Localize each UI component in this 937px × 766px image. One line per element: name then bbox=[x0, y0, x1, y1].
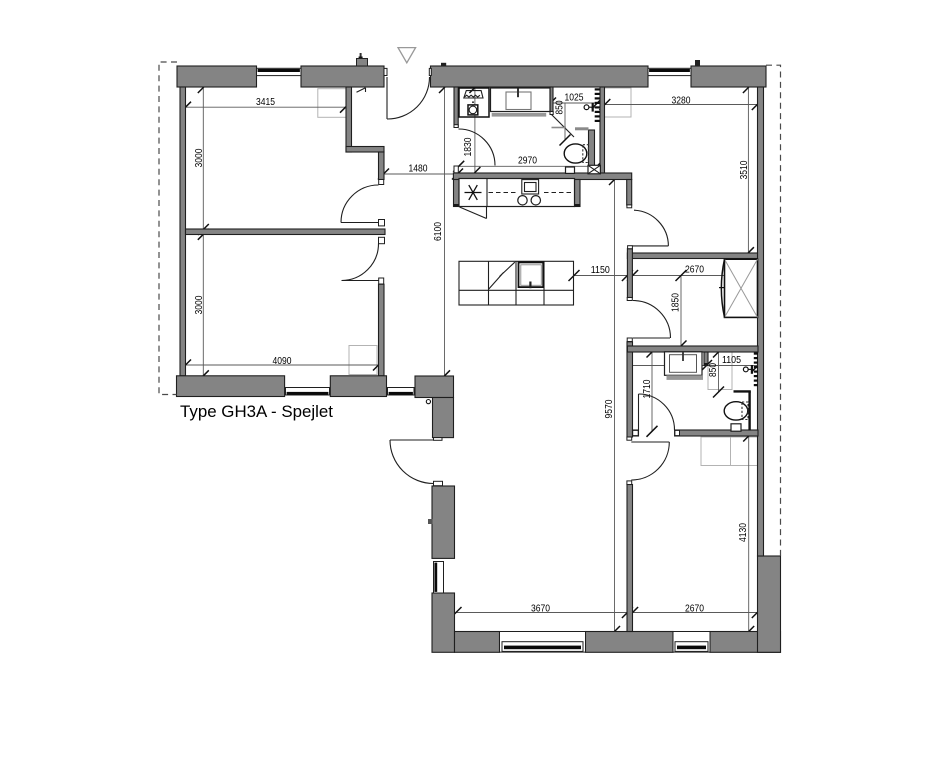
svg-text:850: 850 bbox=[555, 100, 566, 114]
svg-text:3000: 3000 bbox=[194, 295, 205, 314]
svg-text:1150: 1150 bbox=[591, 265, 610, 276]
svg-text:1480: 1480 bbox=[409, 164, 428, 175]
svg-text:2670: 2670 bbox=[685, 264, 704, 275]
svg-text:1105: 1105 bbox=[722, 355, 741, 366]
svg-text:850: 850 bbox=[708, 363, 719, 377]
svg-text:6100: 6100 bbox=[433, 222, 444, 241]
svg-text:3000: 3000 bbox=[194, 148, 205, 167]
svg-text:2970: 2970 bbox=[518, 156, 537, 167]
svg-text:4130: 4130 bbox=[738, 523, 749, 542]
svg-text:2670: 2670 bbox=[685, 603, 704, 614]
svg-text:1830: 1830 bbox=[463, 137, 474, 156]
svg-text:Type GH3A - Spejlet: Type GH3A - Spejlet bbox=[180, 403, 333, 421]
svg-text:9570: 9570 bbox=[604, 399, 615, 418]
svg-text:1850: 1850 bbox=[671, 293, 682, 312]
svg-text:1710: 1710 bbox=[642, 379, 653, 398]
svg-text:3280: 3280 bbox=[672, 96, 691, 107]
svg-text:3670: 3670 bbox=[531, 603, 550, 614]
svg-text:4090: 4090 bbox=[273, 356, 292, 367]
svg-text:3415: 3415 bbox=[256, 97, 275, 108]
svg-text:1025: 1025 bbox=[565, 93, 584, 104]
svg-text:3510: 3510 bbox=[739, 160, 750, 179]
